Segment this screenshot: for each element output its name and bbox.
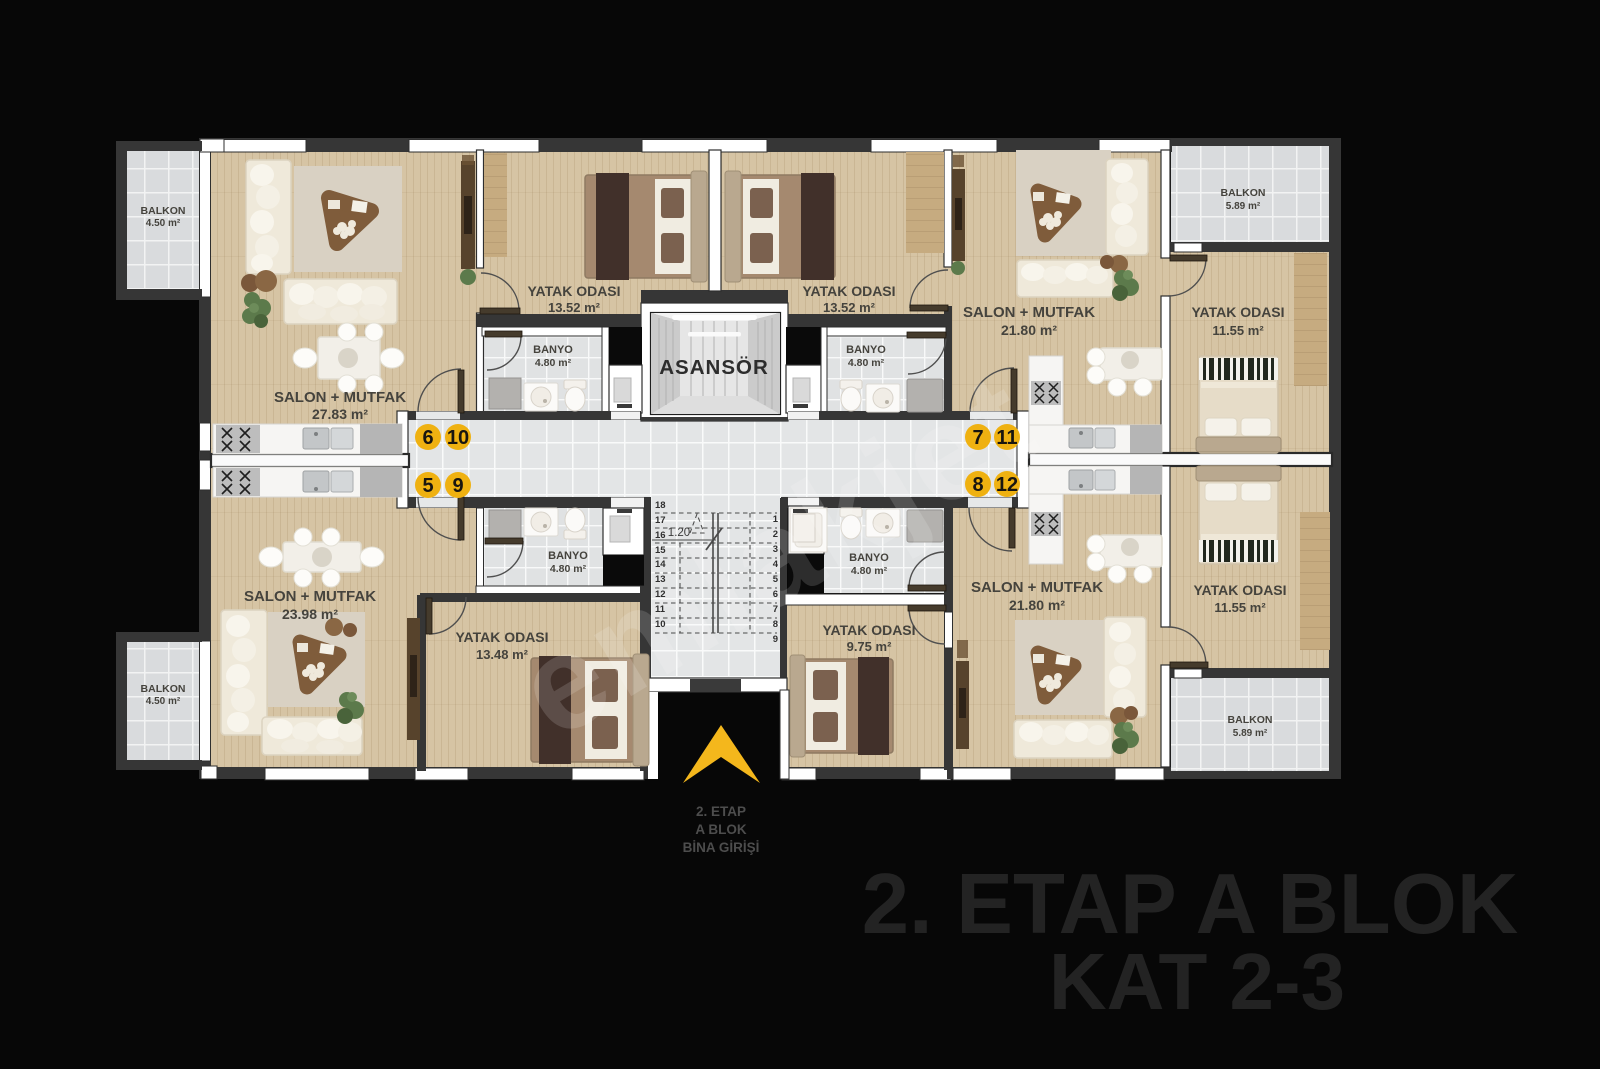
svg-text:12: 12 (655, 589, 666, 600)
svg-text:BİNA GİRİŞİ: BİNA GİRİŞİ (683, 840, 760, 855)
svg-text:2. ETAP: 2. ETAP (696, 804, 746, 819)
svg-text:4.80 m²: 4.80 m² (535, 357, 572, 369)
svg-text:13.52 m²: 13.52 m² (823, 300, 876, 315)
svg-text:1: 1 (773, 514, 779, 525)
svg-text:BANYO: BANYO (846, 344, 886, 356)
svg-text:11.55 m²: 11.55 m² (1212, 323, 1264, 338)
svg-text:12: 12 (996, 474, 1018, 496)
svg-text:SALON + MUTFAK: SALON + MUTFAK (971, 579, 1103, 596)
svg-text:BALKON: BALKON (1228, 714, 1273, 726)
svg-text:BALKON: BALKON (141, 683, 186, 695)
svg-text:BALKON: BALKON (141, 205, 186, 217)
svg-text:8: 8 (972, 474, 983, 496)
svg-text:YATAK ODASI: YATAK ODASI (455, 629, 548, 645)
svg-text:BALKON: BALKON (1221, 187, 1266, 199)
svg-text:SALON + MUTFAK: SALON + MUTFAK (963, 304, 1095, 321)
svg-text:6: 6 (773, 589, 778, 600)
svg-text:5.89 m²: 5.89 m² (1233, 728, 1268, 739)
svg-text:YATAK ODASI: YATAK ODASI (527, 283, 620, 299)
svg-text:A BLOK: A BLOK (695, 822, 746, 837)
svg-text:YATAK ODASI: YATAK ODASI (802, 283, 895, 299)
svg-text:16: 16 (655, 530, 666, 541)
svg-text:17: 17 (655, 515, 666, 526)
svg-text:18: 18 (655, 500, 666, 511)
svg-text:9: 9 (452, 475, 463, 497)
svg-text:11: 11 (655, 604, 666, 615)
svg-text:BANYO: BANYO (548, 550, 588, 562)
svg-text:YATAK ODASI: YATAK ODASI (1193, 582, 1286, 598)
svg-text:4.80 m²: 4.80 m² (550, 563, 587, 575)
svg-text:15: 15 (655, 545, 666, 556)
svg-text:5.89 m²: 5.89 m² (1226, 201, 1261, 212)
svg-text:SALON + MUTFAK: SALON + MUTFAK (244, 588, 376, 605)
svg-text:13.52 m²: 13.52 m² (548, 300, 601, 315)
svg-text:YATAK ODASI: YATAK ODASI (1191, 304, 1284, 320)
svg-text:23.98 m²: 23.98 m² (282, 606, 338, 622)
svg-text:7: 7 (773, 604, 778, 615)
svg-text:KAT 2-3: KAT 2-3 (1049, 937, 1345, 1026)
svg-text:BANYO: BANYO (533, 344, 573, 356)
svg-text:9: 9 (773, 634, 778, 645)
svg-text:11.55 m²: 11.55 m² (1214, 600, 1266, 615)
svg-text:13: 13 (655, 574, 666, 585)
svg-text:3: 3 (773, 544, 778, 555)
svg-text:2: 2 (773, 529, 778, 540)
svg-text:4.80 m²: 4.80 m² (851, 565, 888, 577)
svg-text:ASANSÖR: ASANSÖR (659, 356, 769, 379)
svg-text:9.75 m²: 9.75 m² (847, 639, 892, 654)
svg-text:13.48 m²: 13.48 m² (476, 647, 529, 662)
svg-text:YATAK ODASI: YATAK ODASI (822, 622, 915, 638)
svg-text:8: 8 (773, 619, 778, 630)
svg-text:5: 5 (422, 475, 433, 497)
svg-text:5: 5 (773, 574, 779, 585)
svg-text:27.83 m²: 27.83 m² (312, 406, 368, 422)
svg-text:10: 10 (447, 427, 469, 449)
svg-text:21.80 m²: 21.80 m² (1009, 597, 1065, 613)
svg-text:4.80 m²: 4.80 m² (848, 357, 885, 369)
svg-text:21.80 m²: 21.80 m² (1001, 322, 1057, 338)
svg-text:4.50 m²: 4.50 m² (146, 696, 181, 707)
svg-text:4: 4 (773, 559, 779, 570)
svg-text:14: 14 (655, 559, 666, 570)
svg-text:4.50 m²: 4.50 m² (146, 218, 181, 229)
svg-text:10: 10 (655, 619, 666, 630)
svg-text:BANYO: BANYO (849, 552, 889, 564)
svg-text:11: 11 (996, 427, 1017, 449)
svg-text:6: 6 (422, 427, 433, 449)
svg-text:SALON + MUTFAK: SALON + MUTFAK (274, 389, 406, 406)
svg-text:7: 7 (972, 427, 983, 449)
svg-text:1.20: 1.20 (668, 527, 690, 539)
